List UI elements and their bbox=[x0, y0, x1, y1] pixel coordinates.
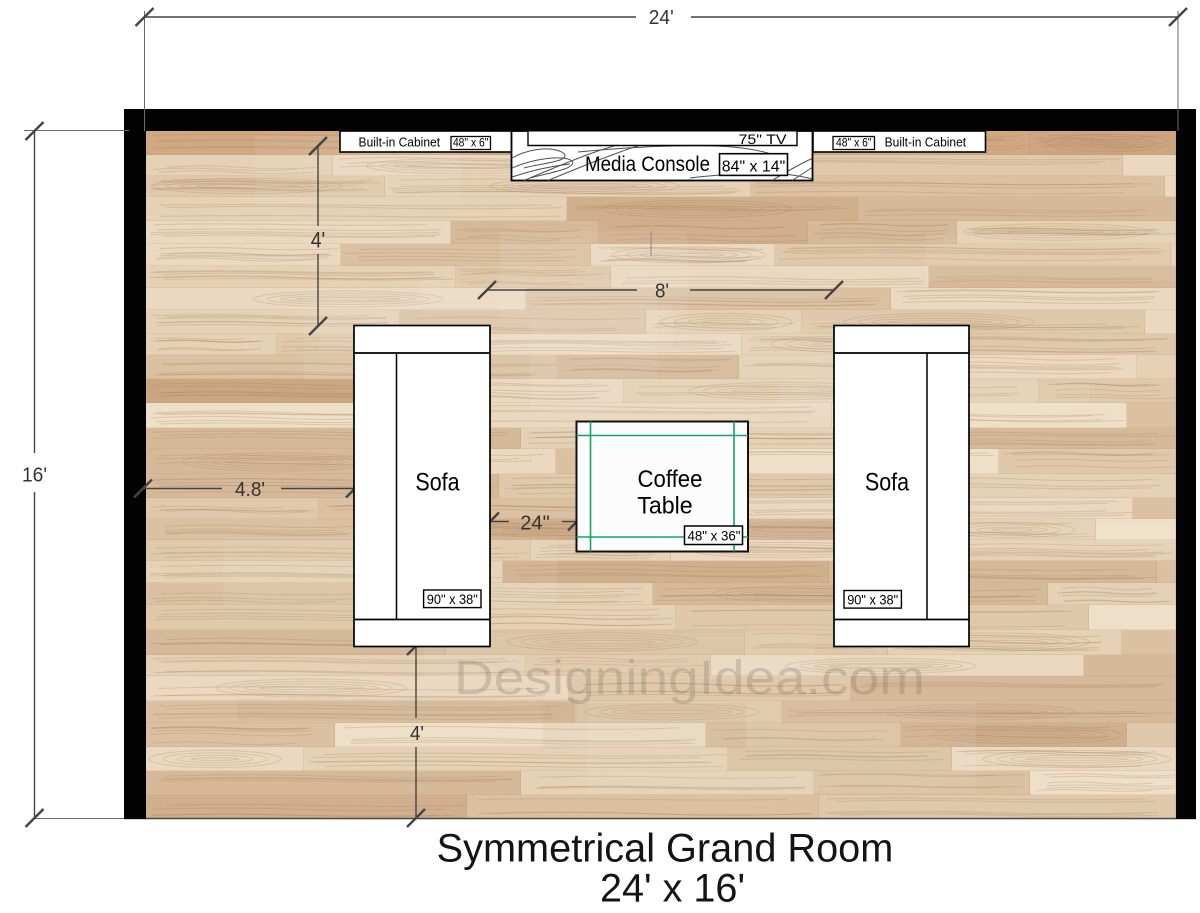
svg-text:Media Console: Media Console bbox=[585, 153, 710, 176]
svg-text:Built-in Cabinet: Built-in Cabinet bbox=[359, 134, 441, 149]
svg-text:8': 8' bbox=[655, 280, 669, 303]
svg-text:24': 24' bbox=[649, 7, 674, 29]
svg-text:75" TV: 75" TV bbox=[739, 131, 788, 147]
svg-text:90" x 38": 90" x 38" bbox=[427, 591, 478, 607]
svg-text:16': 16' bbox=[22, 465, 47, 487]
svg-text:Built-in Cabinet: Built-in Cabinet bbox=[885, 134, 967, 149]
svg-text:4': 4' bbox=[410, 723, 424, 745]
svg-text:90" x 38": 90" x 38" bbox=[847, 591, 898, 607]
svg-text:4': 4' bbox=[311, 228, 326, 253]
svg-text:Table: Table bbox=[637, 493, 692, 520]
svg-text:Symmetrical Grand Room: Symmetrical Grand Room bbox=[437, 826, 894, 870]
svg-text:4.8': 4.8' bbox=[235, 478, 265, 501]
svg-text:84" x 14": 84" x 14" bbox=[722, 159, 786, 176]
svg-text:48" x 6": 48" x 6" bbox=[836, 135, 872, 149]
svg-text:48" x 36": 48" x 36" bbox=[688, 528, 741, 544]
svg-text:24' x 16': 24' x 16' bbox=[600, 866, 745, 908]
svg-text:48" x 6": 48" x 6" bbox=[453, 135, 489, 149]
svg-text:Coffee: Coffee bbox=[638, 466, 703, 493]
svg-text:DesigningIdea.com: DesigningIdea.com bbox=[454, 652, 925, 705]
svg-text:24": 24" bbox=[520, 513, 550, 535]
svg-text:Sofa: Sofa bbox=[415, 468, 459, 496]
svg-text:Sofa: Sofa bbox=[865, 468, 909, 496]
